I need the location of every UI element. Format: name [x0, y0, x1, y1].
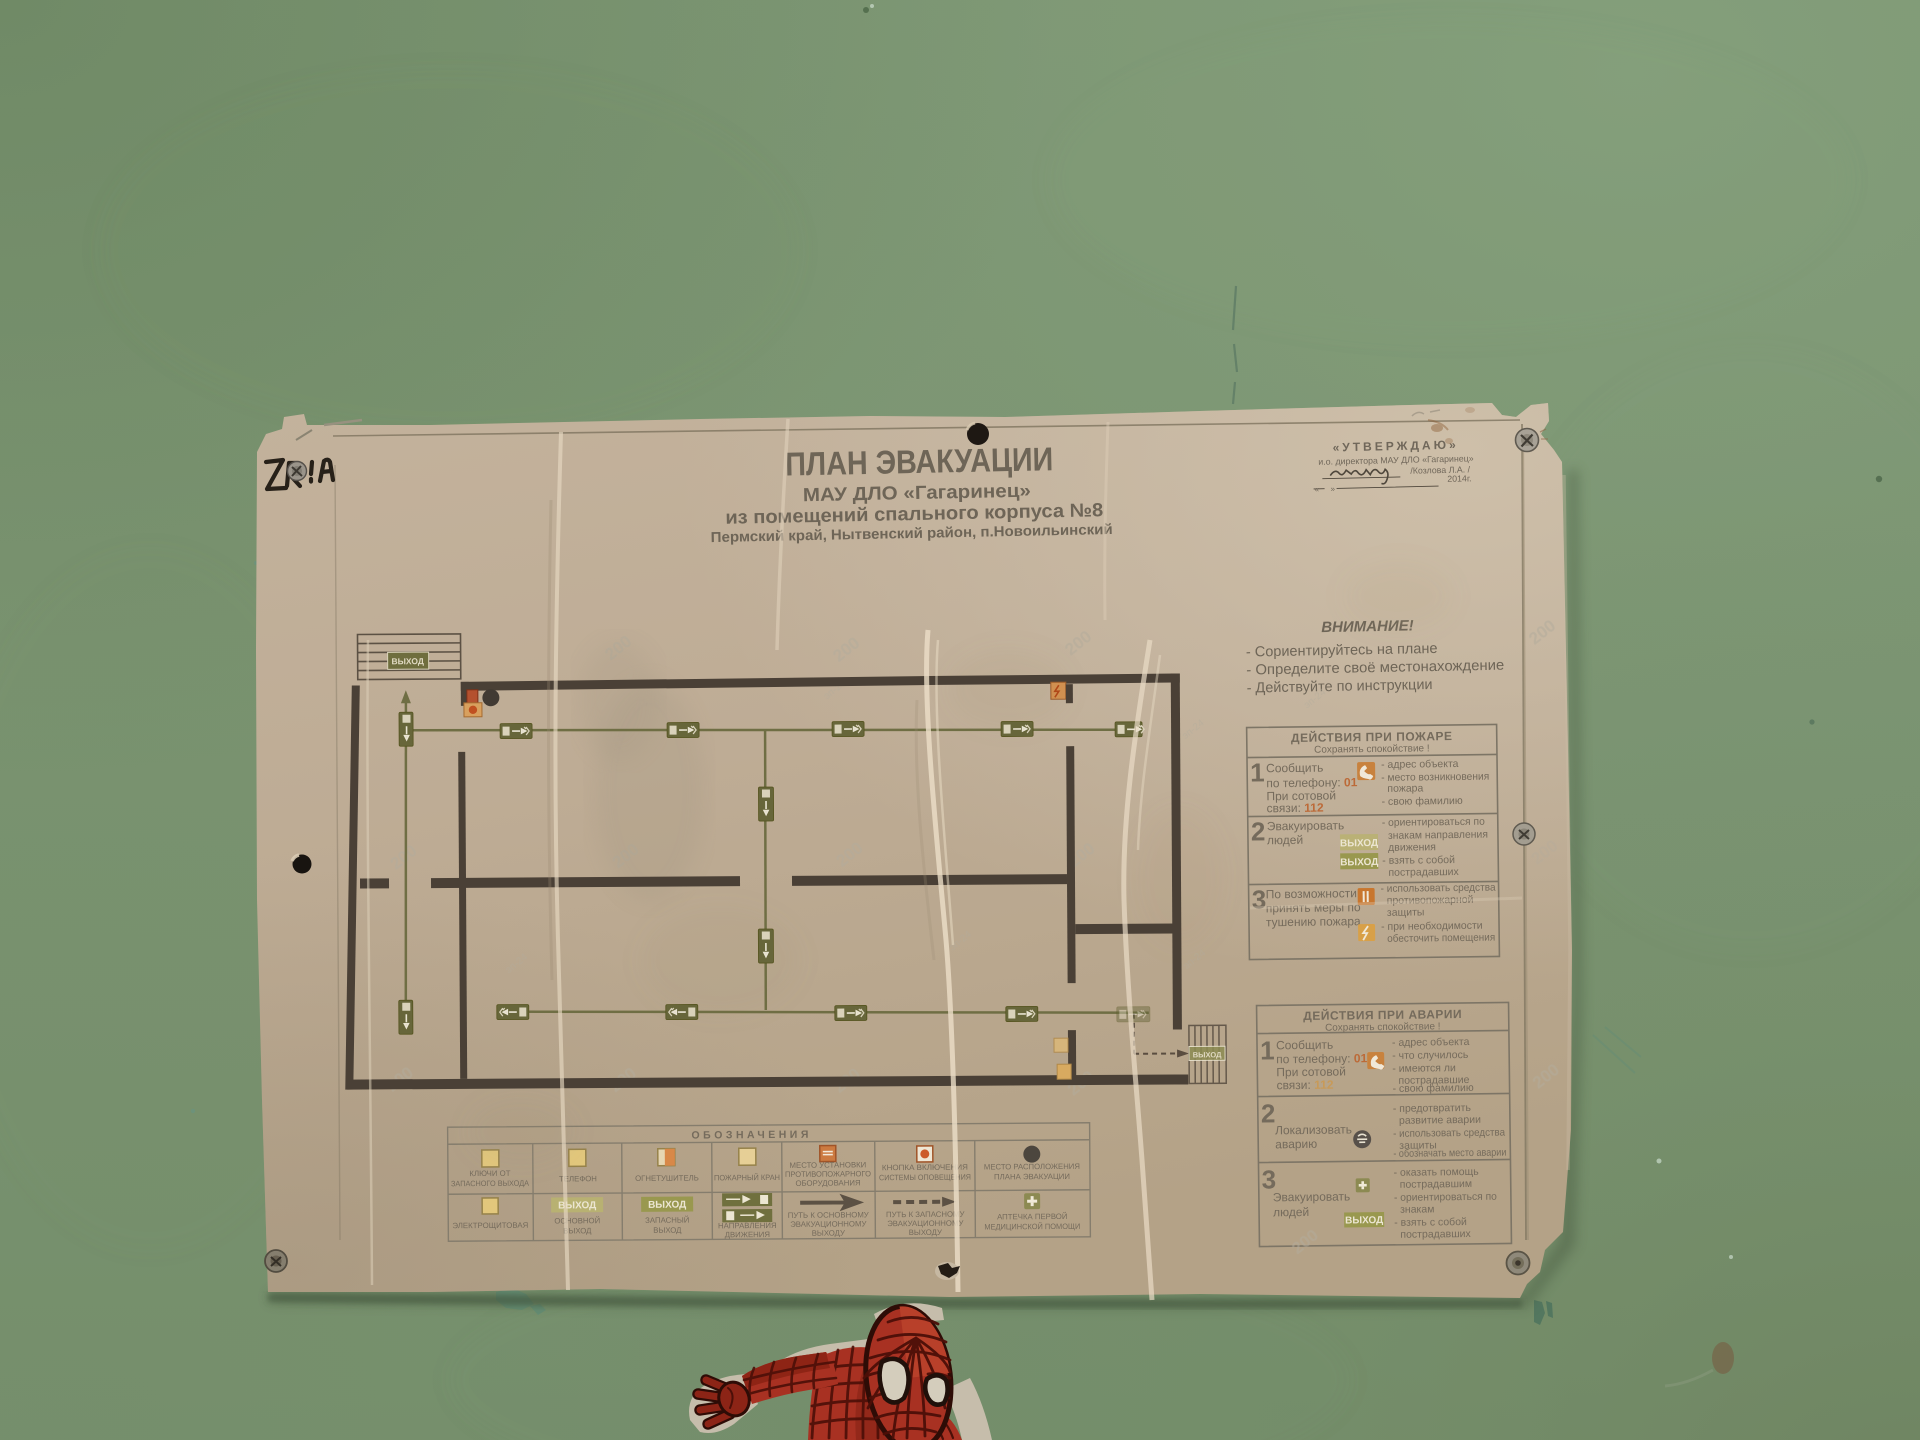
- svg-text:обесточить помещения: обесточить помещения: [1387, 932, 1495, 945]
- svg-text:Сообщить: Сообщить: [1266, 761, 1323, 776]
- svg-text:- адрес объекта: - адрес объекта: [1381, 758, 1459, 771]
- svg-text:Сообщить: Сообщить: [1276, 1038, 1333, 1053]
- svg-text:развитие аварии: развитие аварии: [1399, 1114, 1481, 1127]
- svg-text:ОБОРУДОВАНИЯ: ОБОРУДОВАНИЯ: [795, 1178, 860, 1187]
- svg-text:ВЫХОД: ВЫХОД: [391, 656, 424, 666]
- svg-text:- ориентироваться по: - ориентироваться по: [1394, 1191, 1497, 1204]
- svg-text:АПТЕЧКА ПЕРВОЙ: АПТЕЧКА ПЕРВОЙ: [997, 1212, 1067, 1221]
- svg-text:НАПРАВЛЕНИЯ: НАПРАВЛЕНИЯ: [718, 1221, 777, 1230]
- svg-text:1: 1: [1260, 1035, 1275, 1065]
- svg-text:людей: людей: [1273, 1205, 1309, 1219]
- svg-text:ВЫХОД: ВЫХОД: [1340, 838, 1378, 849]
- svg-text:- адрес объекта: - адрес объекта: [1392, 1036, 1470, 1049]
- svg-text:Сохранять спокойствие !: Сохранять спокойствие !: [1325, 1021, 1441, 1033]
- svg-text:ДВИЖЕНИЯ: ДВИЖЕНИЯ: [725, 1230, 770, 1239]
- svg-text:2: 2: [1261, 1098, 1276, 1128]
- svg-text:»: »: [1330, 484, 1335, 493]
- svg-text:аварию: аварию: [1275, 1137, 1317, 1152]
- svg-text:пострадавшим: пострадавшим: [1400, 1178, 1472, 1191]
- svg-text:- использовать средства: - использовать средства: [1381, 882, 1496, 895]
- svg-text:ЗАПАСНОГО ВЫХОДА: ЗАПАСНОГО ВЫХОДА: [451, 1179, 530, 1189]
- svg-text:знакам: знакам: [1400, 1203, 1434, 1215]
- svg-text:Сохранять спокойствие !: Сохранять спокойствие !: [1314, 743, 1430, 755]
- svg-text:2014г.: 2014г.: [1447, 473, 1471, 484]
- svg-text:МЕСТО РАСПОЛОЖЕНИЯ: МЕСТО РАСПОЛОЖЕНИЯ: [984, 1162, 1080, 1172]
- svg-text:- оказать помощь: - оказать помощь: [1394, 1166, 1480, 1179]
- svg-text:«УТВЕРЖДАЮ»: «УТВЕРЖДАЮ»: [1332, 438, 1458, 455]
- svg-text:ЗАПАСНЫЙ: ЗАПАСНЫЙ: [645, 1216, 689, 1225]
- svg-text:Эвакуировать: Эвакуировать: [1273, 1189, 1351, 1204]
- svg-text:КЛЮЧИ ОТ: КЛЮЧИ ОТ: [469, 1169, 510, 1178]
- svg-text:ПЛАН ЭВАКУАЦИИ: ПЛАН ЭВАКУАЦИИ: [785, 440, 1054, 482]
- svg-text:ВЫХОД: ВЫХОД: [648, 1200, 686, 1211]
- svg-text:ЭЛЕКТРОЩИТОВАЯ: ЭЛЕКТРОЩИТОВАЯ: [452, 1221, 528, 1231]
- svg-text:2: 2: [1251, 816, 1266, 846]
- svg-text:- взять с собой: - взять с собой: [1382, 854, 1455, 867]
- svg-text:- ориентироваться по: - ориентироваться по: [1382, 816, 1485, 829]
- svg-text:«: «: [1314, 485, 1319, 494]
- svg-text:- использовать средства: - использовать средства: [1393, 1127, 1505, 1140]
- svg-text:пострадавших: пострадавших: [1388, 866, 1459, 879]
- svg-text:пострадавших: пострадавших: [1400, 1228, 1471, 1241]
- svg-text:- свою фамилию: - свою фамилию: [1381, 795, 1462, 808]
- svg-text:- взять с собой: - взять с собой: [1394, 1216, 1467, 1229]
- svg-text:защиты: защиты: [1387, 906, 1425, 918]
- svg-text:ОСНОВНОЙ: ОСНОВНОЙ: [554, 1216, 600, 1225]
- svg-text:движения: движения: [1388, 841, 1436, 854]
- svg-text:- свою фамилию: - свою фамилию: [1392, 1082, 1473, 1095]
- svg-text:По возможности: По возможности: [1266, 886, 1357, 901]
- svg-text:Эвакуировать: Эвакуировать: [1267, 818, 1345, 833]
- svg-text:людей: людей: [1267, 833, 1303, 847]
- svg-text:тушению пожара: тушению пожара: [1266, 914, 1361, 929]
- svg-text:связи: 112: связи: 112: [1276, 1078, 1333, 1093]
- svg-text:- что случилось: - что случилось: [1392, 1049, 1469, 1062]
- svg-text:- предотвратить: - предотвратить: [1393, 1102, 1472, 1115]
- svg-text:ВЫХОД: ВЫХОД: [1193, 1050, 1222, 1059]
- svg-text:знакам направления: знакам направления: [1388, 829, 1488, 842]
- svg-text:Локализовать: Локализовать: [1275, 1122, 1352, 1137]
- svg-text:МЕДИЦИНСКОЙ ПОМОЩИ: МЕДИЦИНСКОЙ ПОМОЩИ: [984, 1222, 1080, 1232]
- svg-text:ВЫХОД: ВЫХОД: [653, 1226, 682, 1235]
- svg-text:ВЫХОД: ВЫХОД: [1340, 857, 1378, 868]
- svg-text:ОГНЕТУШИТЕЛЬ: ОГНЕТУШИТЕЛЬ: [635, 1173, 699, 1182]
- svg-text:- обозначать место аварии: - обозначать место аварии: [1393, 1147, 1506, 1160]
- svg-text:ПЛАНА ЭВАКУАЦИИ: ПЛАНА ЭВАКУАЦИИ: [994, 1172, 1070, 1182]
- svg-text:3: 3: [1252, 884, 1267, 914]
- svg-text:1: 1: [1250, 757, 1265, 787]
- svg-text:- имеются ли: - имеются ли: [1392, 1062, 1456, 1075]
- svg-text:ЭВАКУАЦИОННОМУ: ЭВАКУАЦИОННОМУ: [790, 1219, 866, 1229]
- svg-text:ЭВАКУАЦИОННОМУ: ЭВАКУАЦИОННОМУ: [887, 1219, 963, 1229]
- svg-text:ВЫХОДУ: ВЫХОДУ: [812, 1228, 845, 1237]
- svg-text:связи: 112: связи: 112: [1267, 801, 1324, 816]
- svg-text:ПОЖАРНЫЙ КРАН: ПОЖАРНЫЙ КРАН: [714, 1173, 780, 1182]
- svg-text:ВЫХОД: ВЫХОД: [1345, 1215, 1383, 1226]
- svg-text:пожара: пожара: [1387, 782, 1423, 794]
- svg-text:ОБОЗНАЧЕНИЯ: ОБОЗНАЧЕНИЯ: [691, 1129, 811, 1142]
- svg-text:ВЫХОДУ: ВЫХОДУ: [909, 1228, 942, 1237]
